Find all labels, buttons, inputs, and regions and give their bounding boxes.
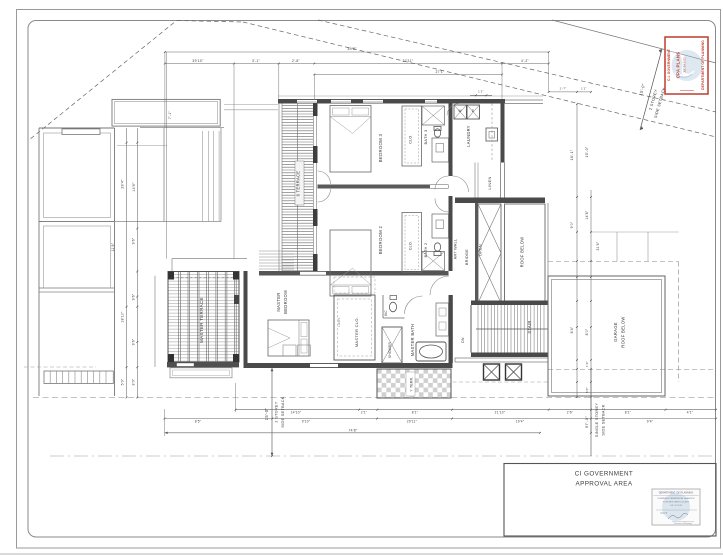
svg-text:14'6": 14'6" bbox=[132, 182, 136, 192]
svg-text:19'4": 19'4" bbox=[516, 419, 525, 423]
svg-text:21'10": 21'10" bbox=[495, 410, 506, 414]
svg-text:1'-7": 1'-7" bbox=[559, 87, 566, 91]
svg-text:9'6": 9'6" bbox=[132, 237, 136, 244]
svg-text:8'0": 8'0" bbox=[585, 328, 589, 335]
svg-text:4'1": 4'1" bbox=[687, 410, 694, 414]
svg-text:14'10": 14'10" bbox=[291, 410, 302, 414]
svg-text:BEDROOM 3: BEDROOM 3 bbox=[378, 133, 383, 162]
svg-text:MASTER CLO.: MASTER CLO. bbox=[354, 317, 359, 347]
svg-text:5'0": 5'0" bbox=[121, 378, 125, 385]
svg-text:C.I. GOVERNMENT: C.I. GOVERNMENT bbox=[667, 48, 671, 81]
svg-text:3'-1": 3'-1" bbox=[252, 59, 261, 63]
svg-text:CI GOVERNMENT: CI GOVERNMENT bbox=[575, 471, 633, 478]
svg-text:97'-0": 97'-0" bbox=[584, 416, 589, 428]
svg-text:15'-0": 15'-0" bbox=[585, 146, 589, 157]
svg-text:D: D bbox=[472, 109, 475, 113]
svg-text:39'8": 39'8" bbox=[347, 47, 357, 51]
svg-text:BRIDGE: BRIDGE bbox=[465, 249, 469, 265]
svg-text:8'0": 8'0" bbox=[585, 387, 589, 393]
svg-text:14'8": 14'8" bbox=[585, 210, 589, 220]
svg-text:2'6": 2'6" bbox=[567, 410, 574, 414]
svg-text:2'1": 2'1" bbox=[361, 410, 368, 414]
svg-text:9'0": 9'0" bbox=[570, 221, 574, 228]
svg-text:GARAGE: GARAGE bbox=[613, 322, 618, 342]
svg-text:2 STOREY: 2 STOREY bbox=[275, 401, 279, 422]
svg-text:39'10": 39'10" bbox=[192, 59, 204, 63]
svg-text:9'6": 9'6" bbox=[132, 338, 136, 345]
svg-text:JUL 24 2023: JUL 24 2023 bbox=[670, 505, 683, 507]
svg-text:MASTER BATH: MASTER BATH bbox=[410, 324, 415, 357]
svg-text:STAIR: STAIR bbox=[527, 320, 532, 333]
svg-text:8'4": 8'4" bbox=[570, 326, 574, 333]
svg-text:ROOF BELOW: ROOF BELOW bbox=[621, 316, 626, 347]
svg-text:27'1": 27'1" bbox=[435, 70, 445, 74]
svg-text:7'-1": 7'-1" bbox=[168, 110, 172, 119]
svg-text:6 TERRACE: 6 TERRACE bbox=[296, 171, 301, 197]
svg-text:BEDROOM 2: BEDROOM 2 bbox=[378, 225, 383, 254]
svg-text:APPROVAL AREA: APPROVAL AREA bbox=[576, 481, 633, 488]
svg-text:CLO.: CLO. bbox=[409, 134, 413, 144]
svg-text:8'1": 8'1" bbox=[412, 410, 419, 414]
svg-text:4'-2": 4'-2" bbox=[521, 59, 530, 63]
svg-text:CLO.: CLO. bbox=[409, 241, 413, 251]
svg-text:1'0": 1'0" bbox=[585, 361, 589, 367]
svg-text:SHOWER: SHOWER bbox=[388, 342, 392, 359]
svg-text:29'11": 29'11" bbox=[407, 419, 417, 423]
svg-text:DEPARTMENT OF PLANNING: DEPARTMENT OF PLANNING bbox=[701, 40, 705, 90]
svg-text:2'-8": 2'-8" bbox=[292, 59, 301, 63]
svg-text:ART WALL: ART WALL bbox=[454, 239, 458, 260]
svg-text:BEDROOM: BEDROOM bbox=[283, 290, 288, 314]
svg-text:9'4": 9'4" bbox=[647, 419, 654, 423]
svg-text:31'6": 31'6" bbox=[596, 241, 600, 251]
svg-text:JUL 24 2023: JUL 24 2023 bbox=[683, 57, 687, 73]
svg-text:27'11": 27'11" bbox=[403, 59, 414, 63]
svg-text:Y TERR.: Y TERR. bbox=[410, 376, 414, 391]
svg-text:9'10": 9'10" bbox=[302, 419, 311, 423]
svg-text:1'1": 1'1" bbox=[581, 87, 587, 91]
svg-text:8'0": 8'0" bbox=[132, 378, 136, 385]
svg-text:16'-1": 16'-1" bbox=[570, 149, 574, 160]
svg-text:BATH 2: BATH 2 bbox=[424, 243, 428, 258]
svg-text:Director of Planning: Director of Planning bbox=[674, 522, 692, 525]
svg-text:CPA PLANS: CPA PLANS bbox=[676, 52, 681, 79]
svg-text:8'5": 8'5" bbox=[195, 419, 202, 423]
svg-text:1'1": 1'1" bbox=[478, 90, 484, 94]
svg-text:Signed:: Signed: bbox=[660, 513, 668, 515]
svg-text:DEPARTMENT OF PLANNING: DEPARTMENT OF PLANNING bbox=[659, 492, 694, 495]
svg-text:LAUNDRY: LAUNDRY bbox=[466, 125, 471, 147]
svg-text:MASTER TERRACE: MASTER TERRACE bbox=[199, 297, 204, 343]
svg-text:HERS: HERS bbox=[337, 318, 341, 327]
svg-text:18'10": 18'10" bbox=[121, 311, 125, 323]
svg-text:DN: DN bbox=[461, 337, 465, 343]
svg-text:11'6": 11'6" bbox=[111, 242, 115, 251]
svg-text:SIDE SETBACK: SIDE SETBACK bbox=[281, 396, 285, 427]
svg-text:74'8": 74'8" bbox=[348, 428, 358, 432]
svg-text:W: W bbox=[458, 109, 461, 113]
svg-text:LINEN: LINEN bbox=[487, 176, 492, 189]
svg-text:BATH 3: BATH 3 bbox=[424, 130, 428, 145]
svg-text:WC: WC bbox=[384, 310, 388, 316]
svg-text:8'1": 8'1" bbox=[625, 410, 632, 414]
svg-text:OPEN: OPEN bbox=[479, 244, 483, 256]
svg-text:FURTHER PARTICULARS: FURTHER PARTICULARS bbox=[663, 501, 690, 504]
svg-text:SIDE SETBACK: SIDE SETBACK bbox=[602, 404, 606, 435]
svg-text:ROOF BELOW: ROOF BELOW bbox=[520, 237, 525, 268]
svg-text:28'4": 28'4" bbox=[121, 179, 125, 189]
svg-text:MASTER: MASTER bbox=[276, 292, 281, 311]
svg-text:SINGLE STOREY: SINGLE STOREY bbox=[595, 403, 599, 438]
svg-text:9'6": 9'6" bbox=[132, 293, 136, 300]
svg-text:PLANNING PERMISSION GRANTED: PLANNING PERMISSION GRANTED bbox=[658, 497, 695, 500]
